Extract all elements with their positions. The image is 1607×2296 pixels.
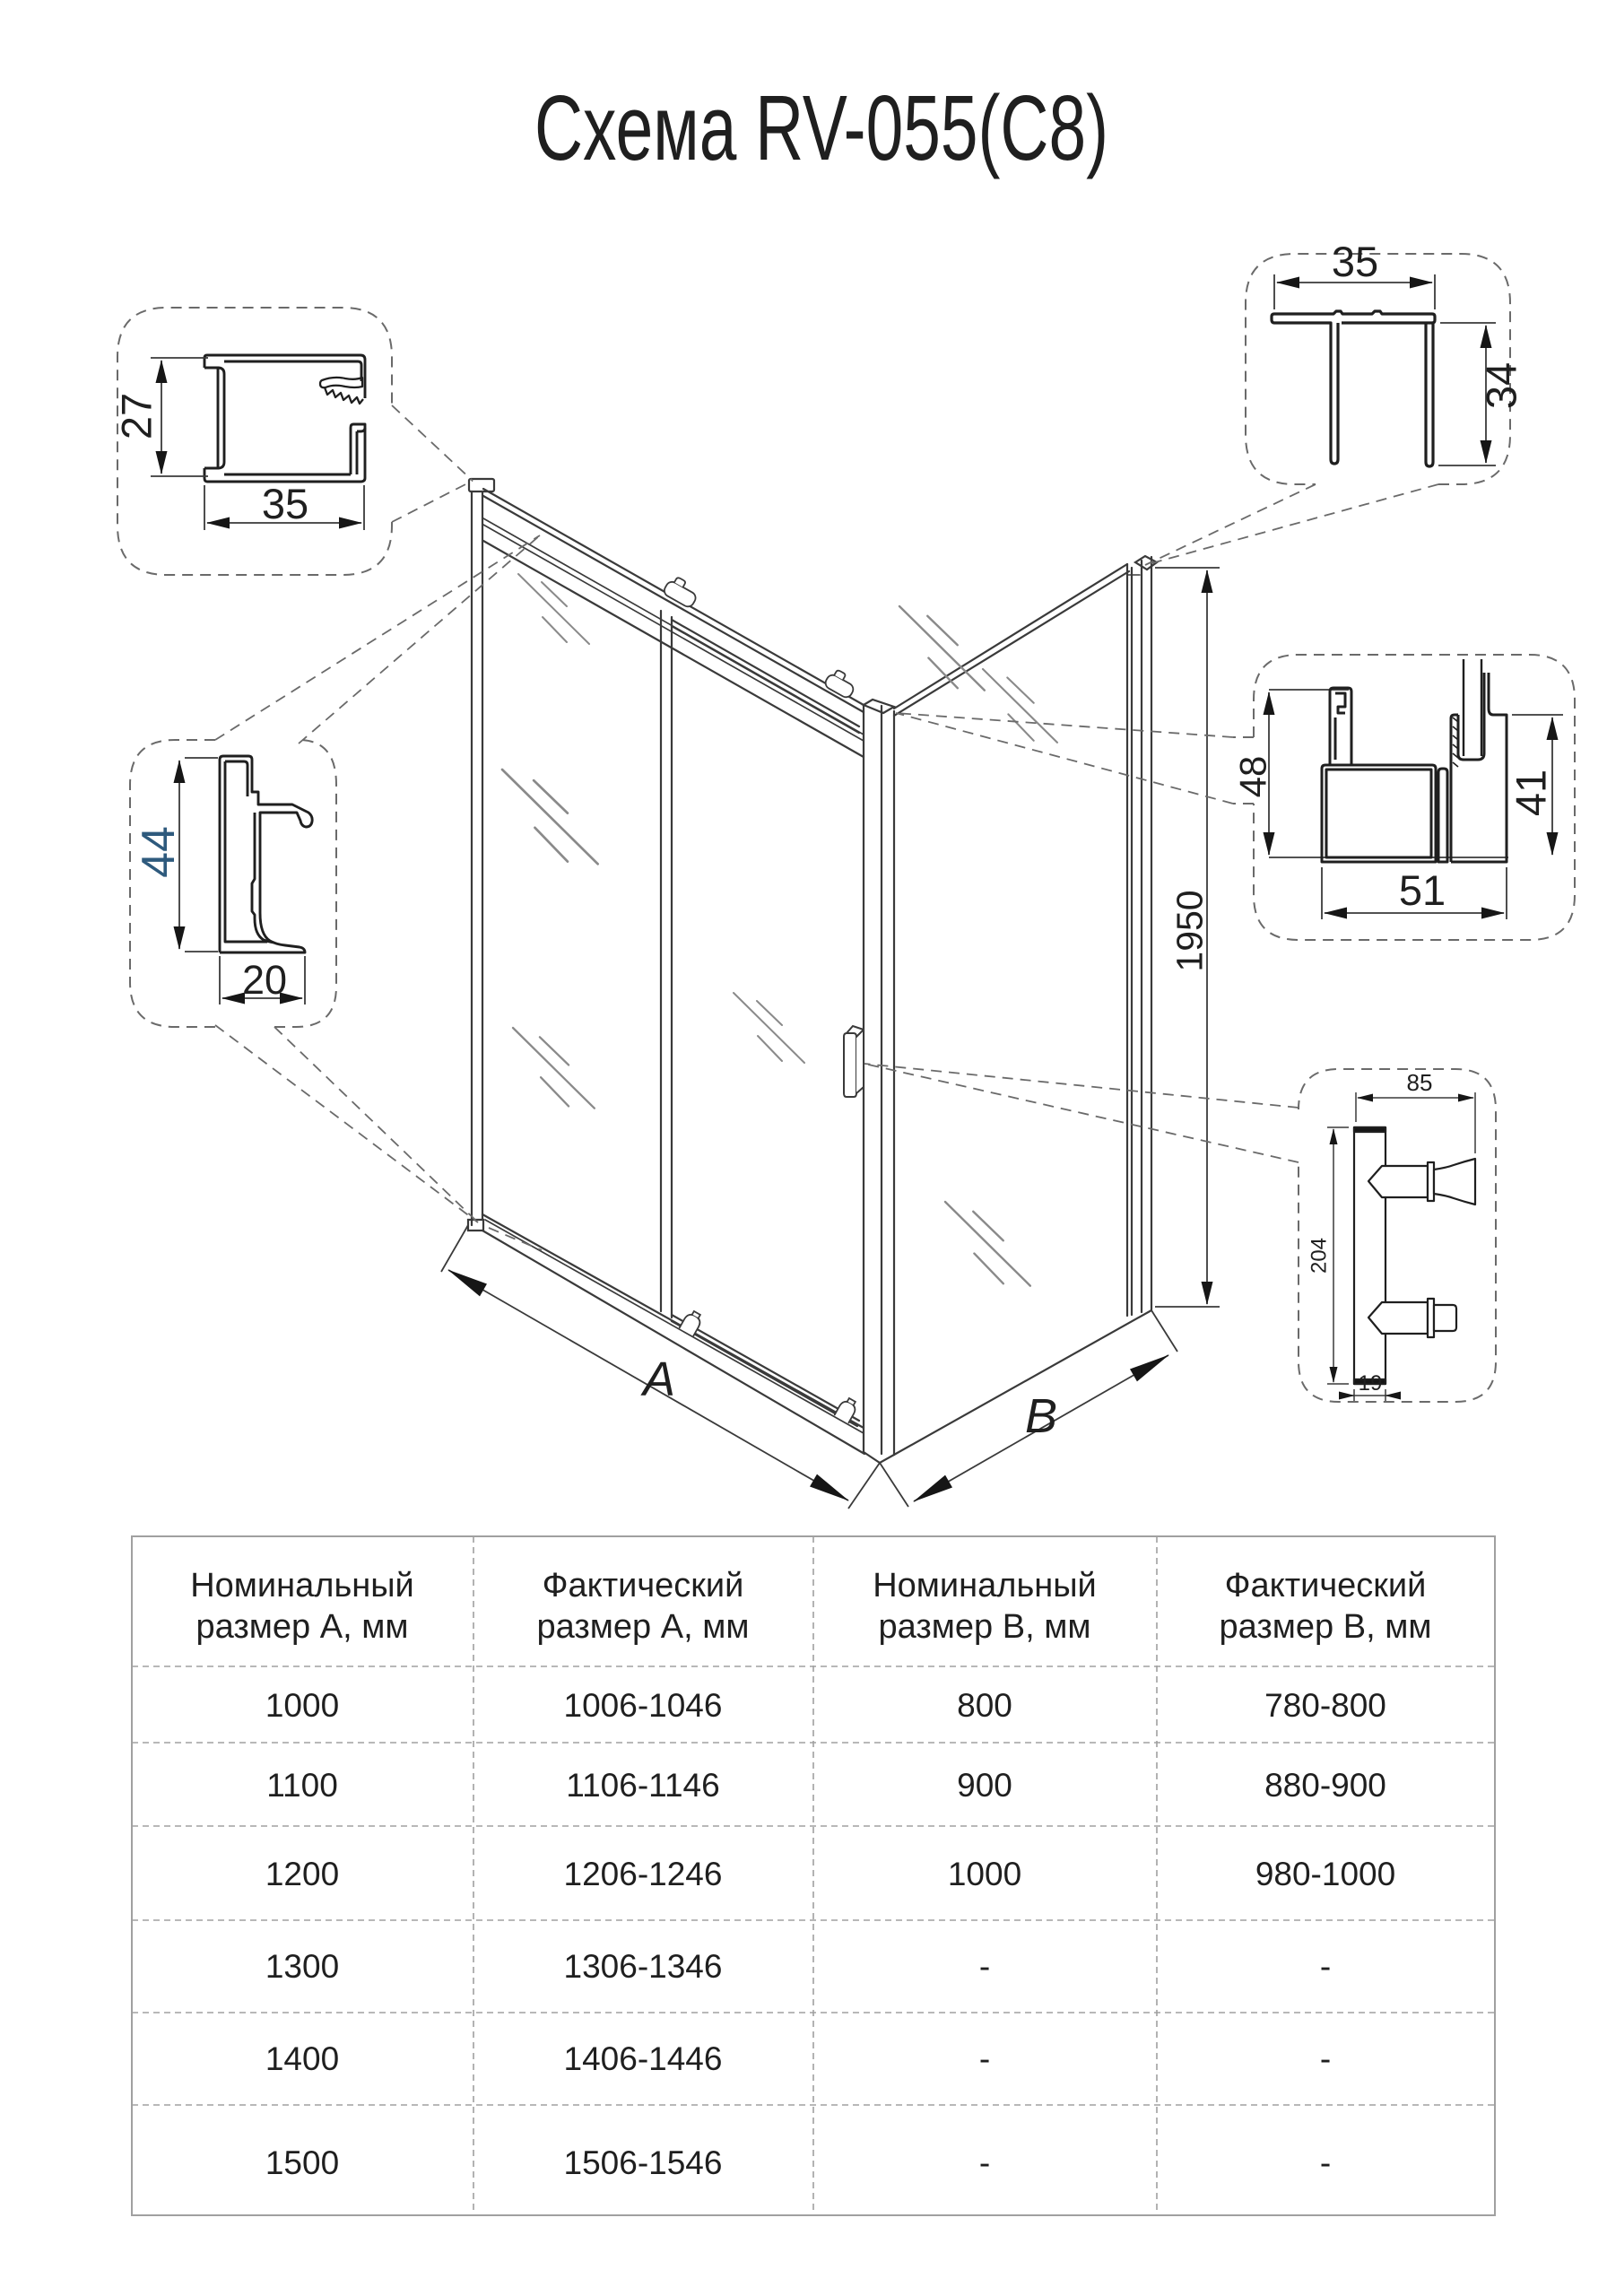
svg-text:1100: 1100 <box>266 1767 338 1804</box>
svg-text:1106-1146: 1106-1146 <box>566 1767 719 1804</box>
svg-text:Фактический: Фактический <box>543 1567 744 1605</box>
svg-text:размер А, мм: размер А, мм <box>196 1608 409 1646</box>
svg-text:19: 19 <box>1359 1371 1383 1396</box>
svg-text:1000: 1000 <box>265 1687 339 1724</box>
svg-text:1500: 1500 <box>265 2144 339 2181</box>
svg-text:-: - <box>979 2144 990 2181</box>
svg-text:44: 44 <box>133 826 185 878</box>
svg-text:Номинальный: Номинальный <box>873 1567 1097 1605</box>
svg-text:Схема RV-055(C8): Схема RV-055(C8) <box>534 76 1108 179</box>
svg-text:41: 41 <box>1507 770 1554 816</box>
svg-text:-: - <box>979 1948 990 1985</box>
svg-text:1506-1546: 1506-1546 <box>564 2144 723 2181</box>
svg-text:размер А, мм: размер А, мм <box>537 1608 750 1646</box>
svg-text:34: 34 <box>1477 362 1524 409</box>
svg-text:1206-1246: 1206-1246 <box>564 1856 723 1892</box>
svg-text:1000: 1000 <box>948 1856 1021 1892</box>
svg-text:размер В, мм: размер В, мм <box>879 1608 1091 1646</box>
svg-text:880-900: 880-900 <box>1264 1767 1386 1804</box>
svg-text:-: - <box>979 2040 990 2077</box>
svg-text:35: 35 <box>1332 238 1378 285</box>
svg-text:Номинальный: Номинальный <box>190 1567 414 1605</box>
svg-text:35: 35 <box>262 480 308 527</box>
svg-text:1400: 1400 <box>265 2040 339 2077</box>
svg-text:1200: 1200 <box>265 1856 339 1892</box>
svg-text:20: 20 <box>242 957 287 1003</box>
svg-text:27: 27 <box>112 393 160 439</box>
svg-text:980-1000: 980-1000 <box>1255 1856 1395 1892</box>
svg-text:-: - <box>1320 1948 1331 1985</box>
svg-text:B: B <box>1025 1389 1057 1443</box>
svg-text:1950: 1950 <box>1168 890 1210 971</box>
svg-text:204: 204 <box>1307 1238 1331 1274</box>
svg-text:780-800: 780-800 <box>1264 1687 1386 1724</box>
svg-text:900: 900 <box>957 1767 1012 1804</box>
svg-text:1300: 1300 <box>265 1948 339 1985</box>
svg-text:-: - <box>1320 2144 1331 2181</box>
svg-text:1306-1346: 1306-1346 <box>564 1948 723 1985</box>
svg-text:1006-1046: 1006-1046 <box>564 1687 723 1724</box>
svg-text:48: 48 <box>1232 756 1274 798</box>
svg-text:1406-1446: 1406-1446 <box>564 2040 723 2077</box>
svg-text:A: A <box>640 1352 675 1406</box>
svg-text:-: - <box>1320 2040 1331 2077</box>
svg-text:51: 51 <box>1399 866 1446 914</box>
svg-text:Фактический: Фактический <box>1225 1567 1427 1605</box>
svg-text:85: 85 <box>1407 1069 1433 1096</box>
svg-text:размер В, мм: размер В, мм <box>1220 1608 1432 1646</box>
svg-text:800: 800 <box>957 1687 1012 1724</box>
